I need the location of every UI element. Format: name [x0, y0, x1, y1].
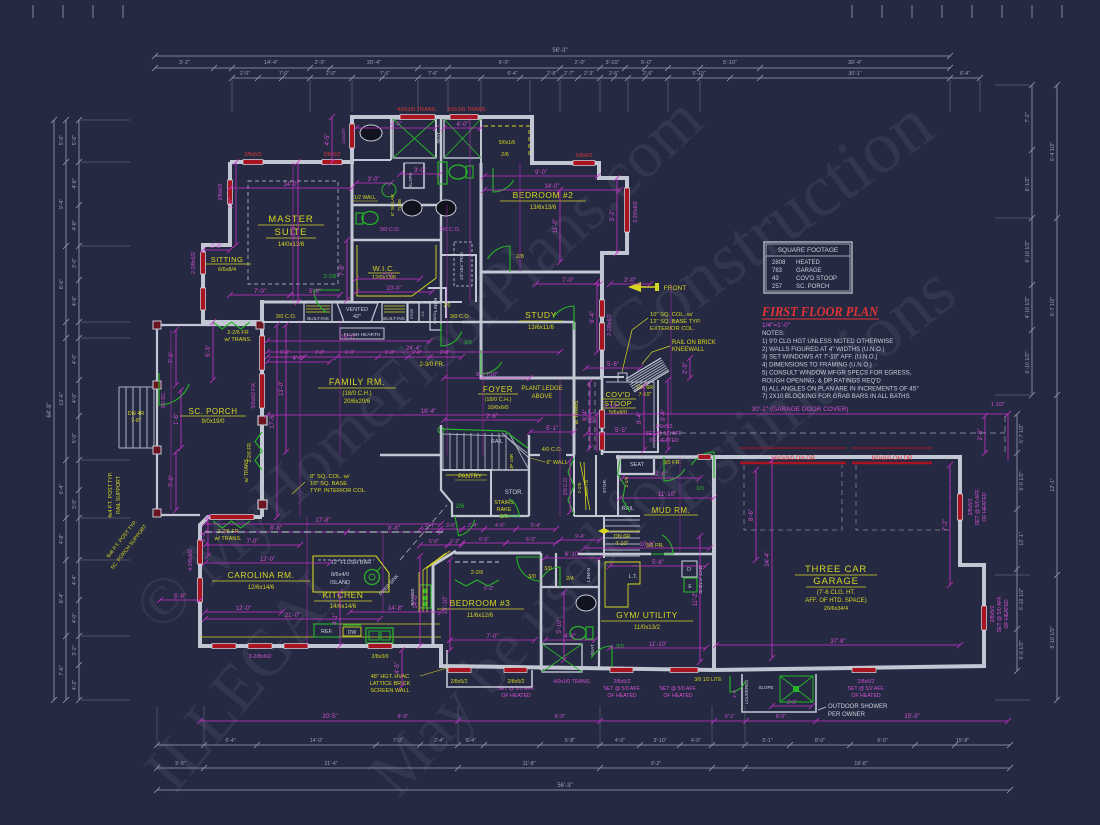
- svg-text:6'-4": 6'-4": [59, 484, 65, 494]
- svg-text:26/6x34/4: 26/6x34/4: [824, 606, 848, 612]
- svg-text:5'-1": 5'-1": [725, 714, 735, 720]
- svg-text:2'-4": 2'-4": [434, 738, 444, 744]
- svg-text:4'-8": 4'-8": [59, 534, 65, 544]
- svg-text:2/6: 2/6: [500, 514, 508, 520]
- svg-text:6'-2": 6'-2": [484, 586, 494, 592]
- svg-text:4x4 P.T. POST TYP.: 4x4 P.T. POST TYP.: [108, 472, 114, 518]
- svg-text:6'-7 1/2": 6'-7 1/2": [1019, 424, 1025, 443]
- svg-text:13/6x13/6: 13/6x13/6: [530, 205, 557, 211]
- svg-text:1 1/2": 1 1/2": [991, 402, 1005, 408]
- svg-text:w/ TRANS.: w/ TRANS.: [213, 536, 242, 542]
- svg-text:5'-5": 5'-5": [175, 761, 185, 767]
- svg-text:L.T.: L.T.: [629, 574, 638, 580]
- svg-text:7) 2X10 BLOCKING FOR GRAB BAR: 7) 2X10 BLOCKING FOR GRAB BARS IN ALL BA…: [762, 393, 910, 400]
- svg-text:1/4"=1'-0": 1/4"=1'-0": [762, 322, 791, 329]
- svg-text:12/6x14/6: 12/6x14/6: [248, 585, 275, 591]
- svg-text:REF.: REF.: [321, 629, 333, 635]
- svg-text:6) ALL ANGLES ON PLAN ARE IN: 6) ALL ANGLES ON PLAN ARE IN INCREMENTS …: [762, 385, 919, 392]
- svg-text:2'-8": 2'-8": [211, 244, 223, 250]
- svg-text:10'-0": 10'-0": [386, 286, 401, 292]
- svg-text:3/0: 3/0: [590, 416, 596, 423]
- svg-text:BUILT-INS: BUILT-INS: [307, 316, 329, 321]
- svg-text:6/6x8/4: 6/6x8/4: [218, 267, 236, 273]
- svg-text:4'-8": 4'-8": [72, 220, 78, 230]
- svg-text:10" SQ. COL. w/: 10" SQ. COL. w/: [650, 312, 693, 318]
- svg-text:12'-1": 12'-1": [1050, 478, 1056, 491]
- svg-text:SC. PORCH: SC. PORCH: [189, 407, 238, 416]
- svg-text:11'-10": 11'-10": [649, 642, 667, 648]
- svg-text:16'-0": 16'-0": [341, 335, 356, 341]
- svg-text:14'-4": 14'-4": [264, 60, 278, 66]
- svg-text:2808: 2808: [772, 260, 786, 266]
- svg-text:9'-0": 9'-0": [398, 714, 409, 720]
- svg-text:8/6x4/0: 8/6x4/0: [331, 572, 349, 578]
- svg-text:1 1/2": 1 1/2": [605, 404, 619, 410]
- svg-text:MASTER: MASTER: [268, 214, 314, 225]
- svg-text:2/4: 2/4: [566, 576, 574, 582]
- svg-text:CAROLINA RM.: CAROLINA RM.: [228, 570, 295, 580]
- svg-text:2/8x6/2: 2/8x6/2: [575, 153, 592, 159]
- svg-text:3-2/0x6/2: 3-2/0x6/2: [633, 201, 639, 223]
- svg-text:4'-8": 4'-8": [72, 178, 78, 188]
- svg-text:6'-10": 6'-10": [565, 552, 580, 558]
- svg-text:2'-8": 2'-8": [385, 350, 395, 356]
- svg-text:HEATED: HEATED: [796, 260, 821, 266]
- svg-text:6'-0": 6'-0": [280, 350, 290, 356]
- svg-text:ROUGH OPENING, & DP RATINGS RE: ROUGH OPENING, & DP RATINGS REQ'D: [762, 377, 881, 384]
- svg-text:5/6x8/0: 5/6x8/0: [609, 410, 627, 416]
- svg-text:8" SQ. COL. w/: 8" SQ. COL. w/: [310, 474, 350, 480]
- svg-text:SET @ 5/0 AFF.: SET @ 5/0 AFF.: [659, 686, 696, 692]
- svg-text:3/0 1/2 LITE: 3/0 1/2 LITE: [694, 677, 722, 683]
- svg-text:8'-6": 8'-6": [749, 509, 755, 521]
- svg-text:9'-4": 9'-4": [661, 409, 667, 421]
- svg-text:5'-0": 5'-0": [72, 433, 78, 443]
- svg-text:2/8x6/2: 2/8x6/2: [218, 183, 224, 200]
- svg-text:6'-0": 6'-0": [345, 350, 355, 356]
- svg-text:4) DIMENSIONS TO FRAMING (U.N: 4) DIMENSIONS TO FRAMING (U.N.O.): [762, 362, 872, 369]
- svg-text:21'-0": 21'-0": [285, 613, 300, 619]
- svg-text:9'-4": 9'-4": [575, 534, 585, 540]
- svg-text:12" SQ. BASE TYP.: 12" SQ. BASE TYP.: [650, 319, 701, 325]
- svg-text:2-2/6: 2-2/6: [577, 482, 583, 493]
- svg-text:3'-10": 3'-10": [605, 60, 619, 66]
- svg-text:9'-4": 9'-4": [59, 199, 65, 209]
- svg-text:17'-8": 17'-8": [315, 518, 330, 524]
- svg-text:8'-0": 8'-0": [776, 714, 786, 720]
- svg-text:w/ TRANS.: w/ TRANS.: [574, 400, 580, 425]
- svg-text:3/0 FR.: 3/0 FR.: [663, 460, 682, 466]
- svg-text:7'-2": 7'-2": [1025, 112, 1031, 122]
- svg-text:5) CONSULT WINDOW MFGR SPECS: 5) CONSULT WINDOW MFGR SPECS FOR EGRESS,: [762, 370, 912, 377]
- svg-text:24'-4": 24'-4": [765, 551, 771, 566]
- svg-text:BEDROOM #2: BEDROOM #2: [513, 190, 574, 200]
- svg-text:6'-0": 6'-0": [877, 738, 887, 744]
- svg-text:7'-0": 7'-0": [393, 738, 403, 744]
- svg-text:FAMILY RM.: FAMILY RM.: [329, 377, 385, 387]
- svg-text:6'-10 1/2": 6'-10 1/2": [1025, 240, 1031, 262]
- svg-text:7'-6": 7'-6": [428, 71, 438, 77]
- svg-text:30'-1": 30'-1": [848, 71, 861, 77]
- svg-text:3'-2": 3'-2": [72, 645, 78, 655]
- svg-text:5'-8": 5'-8": [309, 289, 321, 295]
- svg-text:14'-0": 14'-0": [310, 738, 323, 744]
- svg-text:4'-2": 4'-2": [72, 680, 78, 690]
- svg-text:19'-8": 19'-8": [854, 761, 867, 767]
- svg-text:3/0x1/0 TRANS.: 3/0x1/0 TRANS.: [447, 107, 487, 113]
- svg-text:15'-3": 15'-3": [904, 714, 919, 720]
- svg-text:COV'D: COV'D: [605, 390, 630, 399]
- svg-text:5'-1": 5'-1": [546, 426, 558, 432]
- svg-text:5'-8": 5'-8": [565, 738, 575, 744]
- svg-text:9'-10": 9'-10": [692, 71, 705, 77]
- svg-text:2'-4": 2'-4": [468, 523, 478, 529]
- svg-text:6" WALL: 6" WALL: [546, 460, 567, 466]
- svg-text:3/0 SC.: 3/0 SC.: [161, 392, 167, 409]
- svg-text:3'-10": 3'-10": [653, 738, 666, 744]
- svg-text:5'-4": 5'-4": [531, 523, 541, 529]
- svg-text:5'-0": 5'-0": [59, 135, 65, 145]
- svg-text:STOR.: STOR.: [602, 479, 608, 494]
- svg-text:13'-0": 13'-0": [279, 381, 285, 396]
- svg-text:8'-8": 8'-8": [388, 526, 400, 532]
- svg-text:4'-5": 4'-5": [395, 662, 401, 674]
- svg-text:11'-0": 11'-0": [553, 219, 559, 234]
- svg-text:9'-4": 9'-4": [590, 311, 596, 323]
- svg-text:5'-10": 5'-10": [557, 618, 563, 633]
- svg-text:2/8x3/0: 2/8x3/0: [371, 654, 388, 660]
- svg-text:EXTERIOR COL.: EXTERIOR COL.: [650, 326, 695, 332]
- svg-text:TYP. INTERIOR COL.: TYP. INTERIOR COL.: [310, 488, 367, 494]
- svg-text:2/8x5/2: 2/8x5/2: [507, 679, 524, 685]
- svg-text:3/0: 3/0: [696, 486, 704, 492]
- svg-text:7-0": 7-0": [229, 198, 235, 209]
- svg-text:12'-0": 12'-0": [236, 606, 251, 612]
- svg-text:4'-1": 4'-1": [333, 613, 339, 625]
- svg-text:RAIL: RAIL: [491, 439, 503, 445]
- svg-text:4'-0": 4'-0": [615, 738, 625, 744]
- svg-text:SET @ 5/0 AFF.: SET @ 5/0 AFF.: [997, 595, 1003, 632]
- svg-text:ISLAND: ISLAND: [330, 580, 350, 586]
- svg-text:20'-5": 20'-5": [322, 714, 337, 720]
- svg-text:14'-0": 14'-0": [544, 184, 559, 190]
- svg-text:8'-3 7/16": 8'-3 7/16": [476, 372, 498, 378]
- svg-text:PLANT LEDGE: PLANT LEDGE: [521, 386, 562, 392]
- svg-text:1) 9'0 CLG HGT UNLESS NOTED O: 1) 9'0 CLG HGT UNLESS NOTED OTHERWISE: [762, 338, 893, 345]
- svg-text:6'-10 1/2": 6'-10 1/2": [1050, 626, 1056, 648]
- svg-text:SLOPE: SLOPE: [408, 172, 413, 187]
- svg-text:D: D: [687, 567, 691, 573]
- svg-text:OUTDOOR SHOWER: OUTDOOR SHOWER: [828, 704, 888, 710]
- svg-text:SET @ 5/0 AFF.: SET @ 5/0 AFF.: [603, 686, 640, 692]
- svg-text:3/0 C.O.: 3/0 C.O.: [380, 227, 401, 233]
- svg-text:2-3/0 FR.: 2-3/0 FR.: [419, 362, 444, 368]
- svg-text:5'-3": 5'-3": [206, 345, 212, 357]
- svg-text:6'-7 1/2": 6'-7 1/2": [1050, 297, 1056, 316]
- svg-text:7-8": 7-8": [131, 418, 141, 424]
- svg-text:SC. PORCH: SC. PORCH: [796, 284, 829, 290]
- svg-text:RAIL ON BRICK: RAIL ON BRICK: [672, 340, 716, 346]
- svg-text:FIRST FLOOR PLAN: FIRST FLOOR PLAN: [761, 305, 879, 320]
- svg-text:VENTED: VENTED: [346, 307, 368, 313]
- svg-text:3'-2": 3'-2": [179, 60, 190, 66]
- svg-text:56'-3": 56'-3": [557, 783, 572, 789]
- svg-text:SEAT: SEAT: [436, 132, 441, 144]
- svg-text:ABOVE: ABOVE: [532, 394, 553, 400]
- svg-text:16'-4": 16'-4": [421, 409, 436, 415]
- svg-text:SITTING: SITTING: [211, 255, 243, 264]
- svg-text:5'-10": 5'-10": [723, 60, 737, 66]
- svg-text:BEDROOM #3: BEDROOM #3: [450, 598, 511, 608]
- svg-text:2'-8": 2'-8": [547, 71, 557, 77]
- svg-text:13'-6": 13'-6": [291, 224, 297, 239]
- svg-text:2'-6": 2'-6": [655, 472, 667, 478]
- svg-text:13'-6": 13'-6": [59, 392, 65, 405]
- svg-text:W.I.C.: W.I.C.: [373, 264, 396, 273]
- svg-text:30'-1" (GARAGE DOOR COVER): 30'-1" (GARAGE DOOR COVER): [752, 406, 849, 413]
- svg-text:4'-0": 4'-0": [72, 613, 78, 623]
- svg-text:14/0x13/6: 14/0x13/6: [278, 242, 305, 248]
- svg-text:21'-4": 21'-4": [324, 761, 337, 767]
- svg-text:THREE CAR: THREE CAR: [805, 564, 867, 575]
- svg-text:5'-1": 5'-1": [762, 738, 772, 744]
- svg-text:4'-4": 4'-4": [72, 575, 78, 585]
- svg-text:6'-4": 6'-4": [225, 738, 235, 744]
- svg-text:10" SQ. BASE: 10" SQ. BASE: [310, 481, 347, 487]
- svg-text:GARAGE: GARAGE: [796, 268, 822, 274]
- svg-text:7'-0": 7'-0": [562, 278, 574, 284]
- svg-text:3/0: 3/0: [544, 566, 552, 572]
- svg-text:6'-0 1/2": 6'-0 1/2": [1019, 640, 1025, 659]
- svg-text:2/6: 2/6: [456, 504, 465, 510]
- svg-text:KNEEWALL: KNEEWALL: [672, 347, 705, 353]
- svg-text:4'-0": 4'-0": [495, 523, 505, 529]
- svg-text:5'-8": 5'-8": [174, 594, 186, 600]
- svg-text:OF HEATED: OF HEATED: [1004, 599, 1010, 629]
- svg-text:OF HEATED: OF HEATED: [649, 438, 679, 444]
- svg-text:6'-0": 6'-0": [479, 537, 489, 543]
- svg-text:3/0 C.O.: 3/0 C.O.: [276, 314, 297, 320]
- svg-text:2'-0": 2'-0": [624, 278, 636, 284]
- svg-text:OF HEATED: OF HEATED: [982, 492, 988, 522]
- svg-text:6'-0": 6'-0": [526, 537, 536, 543]
- svg-text:2-2/6 FR: 2-2/6 FR: [227, 330, 248, 336]
- svg-text:6'-0 1/2": 6'-0 1/2": [1019, 471, 1025, 490]
- svg-text:12'-1": 12'-1": [1019, 532, 1025, 545]
- svg-text:5'-0": 5'-0": [641, 60, 652, 66]
- svg-text:56'-3": 56'-3": [552, 48, 567, 54]
- svg-text:24"x54" PDS: 24"x54" PDS: [459, 252, 465, 280]
- svg-text:8'-8": 8'-8": [270, 526, 282, 532]
- svg-text:8'-4": 8'-4": [59, 593, 65, 603]
- svg-text:2/6: 2/6: [501, 152, 509, 158]
- svg-text:LINEN: LINEN: [433, 297, 439, 312]
- svg-text:42": 42": [353, 314, 361, 320]
- svg-text:6'-0": 6'-0": [429, 539, 439, 545]
- svg-text:(7'-6 CLG. HT.: (7'-6 CLG. HT.: [817, 590, 855, 596]
- svg-text:20/6x20/6: 20/6x20/6: [344, 399, 371, 405]
- svg-text:DN 6R: DN 6R: [614, 534, 631, 540]
- svg-text:4/0x1/0 TRANS.: 4/0x1/0 TRANS.: [397, 107, 437, 113]
- svg-text:STOR.: STOR.: [505, 490, 524, 496]
- svg-text:4'-10 1/2": 4'-10 1/2": [1025, 296, 1031, 318]
- svg-text:3) SET WINDOWS AT 7'-10" AFF.: 3) SET WINDOWS AT 7'-10" AFF. (U.N.O.): [762, 354, 877, 361]
- svg-text:3/0: 3/0: [464, 340, 472, 346]
- svg-text:3'-6": 3'-6": [787, 700, 797, 706]
- svg-text:11'-2": 11'-2": [693, 592, 699, 607]
- svg-text:SQUARE FOOTAGE: SQUARE FOOTAGE: [778, 247, 839, 254]
- svg-text:UP 16R: UP 16R: [509, 453, 515, 470]
- svg-text:7'-0": 7'-0": [382, 273, 394, 279]
- svg-text:6'-10 1/2": 6'-10 1/2": [1025, 351, 1031, 373]
- svg-text:LINEN: LINEN: [433, 312, 437, 323]
- svg-text:8/0x8/0 OH DR: 8/0x8/0 OH DR: [872, 456, 913, 462]
- svg-text:48" HGT. HVAC: 48" HGT. HVAC: [371, 674, 410, 680]
- svg-text:7'-2": 7'-2": [943, 519, 949, 531]
- svg-text:DN 6R: DN 6R: [637, 385, 654, 391]
- svg-text:4'-0": 4'-0": [390, 122, 402, 128]
- svg-text:7-10": 7-10": [639, 392, 652, 398]
- svg-text:64'-9": 64'-9": [47, 402, 53, 417]
- svg-text:16/0x8/0 OH DR: 16/0x8/0 OH DR: [771, 456, 816, 462]
- svg-text:2'-8": 2'-8": [440, 350, 450, 356]
- svg-text:(18/0 C.H.): (18/0 C.H.): [485, 397, 512, 403]
- svg-text:2'-9": 2'-9": [683, 362, 689, 374]
- svg-text:9/0x19/0: 9/0x19/0: [201, 419, 225, 425]
- svg-text:3/0 C.O.: 3/0 C.O.: [440, 227, 461, 233]
- svg-text:4'-5": 4'-5": [325, 134, 331, 146]
- svg-text:5'-6": 5'-6": [652, 560, 664, 566]
- svg-text:SHELV/ CAB: SHELV/ CAB: [698, 566, 704, 594]
- svg-text:17'-5": 17'-5": [270, 413, 276, 428]
- svg-text:NOTES:: NOTES:: [762, 330, 785, 337]
- svg-text:11/0x13/2: 11/0x13/2: [634, 625, 661, 631]
- svg-text:8'-6": 8'-6": [59, 279, 65, 289]
- svg-text:4/0 C.O.: 4/0 C.O.: [542, 447, 563, 453]
- svg-text:3'-0": 3'-0": [72, 258, 78, 268]
- svg-text:2-2/6: 2-2/6: [471, 570, 484, 576]
- svg-text:STOR: STOR: [410, 309, 414, 320]
- svg-text:7'-6": 7'-6": [59, 665, 65, 675]
- svg-text:5'-5": 5'-5": [615, 428, 627, 434]
- svg-text:2) WALLS FIGURED AT 4" WIDTHS: 2) WALLS FIGURED AT 4" WIDTHS (U.N.O.): [762, 346, 885, 353]
- svg-text:7'-0": 7'-0": [487, 634, 499, 640]
- svg-text:2'-0": 2'-0": [575, 60, 586, 66]
- svg-text:9'-0": 9'-0": [555, 714, 566, 720]
- svg-text:13/6x11/6: 13/6x11/6: [528, 325, 555, 331]
- svg-text:7'-6": 7'-6": [380, 71, 390, 77]
- svg-text:3/0: 3/0: [528, 574, 536, 580]
- svg-text:9'-2": 9'-2": [651, 761, 661, 767]
- svg-text:783: 783: [772, 268, 783, 274]
- svg-text:11/6x12/6: 11/6x12/6: [467, 613, 494, 619]
- svg-text:1'-6": 1'-6": [174, 413, 180, 425]
- svg-text:SET @ 5/0 AFF.: SET @ 5/0 AFF.: [975, 488, 981, 525]
- svg-text:4'-0": 4'-0": [457, 122, 469, 128]
- svg-text:1/4x3/7: 1/4x3/7: [341, 128, 347, 144]
- svg-text:4'-0": 4'-0": [293, 356, 305, 362]
- svg-text:2/0x5/2: 2/0x5/2: [655, 424, 672, 430]
- svg-text:4'-0: 4'-0: [732, 690, 737, 698]
- svg-text:20'-4": 20'-4": [367, 60, 381, 66]
- svg-text:3'-0": 3'-0": [446, 523, 456, 529]
- svg-text:12'-0": 12'-0": [260, 557, 275, 563]
- svg-text:FOYER: FOYER: [483, 385, 513, 394]
- svg-text:RAKE: RAKE: [497, 507, 512, 513]
- svg-text:14'-0": 14'-0": [283, 182, 298, 188]
- svg-text:OF HEATED: OF HEATED: [501, 693, 531, 699]
- svg-text:6'-4": 6'-4": [507, 71, 517, 77]
- svg-text:6'-4 1/2": 6'-4 1/2": [1050, 142, 1056, 161]
- svg-text:RAIL SUPPORT: RAIL SUPPORT: [116, 475, 122, 514]
- svg-text:4-2/8x6/2: 4-2/8x6/2: [188, 549, 194, 571]
- svg-text:3-2/8x6/2: 3-2/8x6/2: [249, 654, 272, 660]
- svg-text:11'-10": 11'-10": [658, 492, 676, 498]
- svg-text:2/8x6/2: 2/8x6/2: [244, 152, 261, 158]
- svg-text:6" SOLAR: 6" SOLAR: [390, 193, 396, 216]
- svg-text:AFF. OF HTD. SPACE): AFF. OF HTD. SPACE): [805, 598, 867, 604]
- svg-text:2/8x5/2: 2/8x5/2: [450, 679, 467, 685]
- svg-text:43: 43: [772, 276, 779, 282]
- svg-text:2-2/8x6/2: 2-2/8x6/2: [607, 314, 613, 336]
- svg-text:6'-1/2": 6'-1/2": [1025, 177, 1031, 192]
- svg-text:OF HEATED: OF HEATED: [663, 693, 693, 699]
- svg-text:4'-6": 4'-6": [72, 296, 78, 306]
- svg-text:OF HEATED: OF HEATED: [607, 693, 637, 699]
- svg-text:3'-2": 3'-2": [610, 210, 616, 222]
- svg-text:w/ TRANS.: w/ TRANS.: [223, 337, 252, 343]
- svg-text:3'-0": 3'-0": [414, 168, 426, 174]
- svg-text:DW: DW: [348, 630, 357, 636]
- svg-text:LINEN: LINEN: [586, 567, 592, 582]
- svg-text:2'-4": 2'-4": [425, 523, 435, 529]
- svg-text:2'-0": 2'-0": [315, 60, 326, 66]
- svg-text:9'-0": 9'-0": [535, 170, 547, 176]
- svg-text:5'-0": 5'-0": [72, 135, 78, 145]
- svg-text:14'-8": 14'-8": [388, 606, 403, 612]
- svg-text:MUD RM.: MUD RM.: [652, 506, 691, 515]
- svg-text:DN 4R: DN 4R: [128, 411, 145, 417]
- svg-text:FRONT: FRONT: [664, 285, 686, 292]
- svg-text:4'-6": 4'-6": [564, 634, 576, 640]
- svg-text:14'-0": 14'-0": [413, 593, 419, 608]
- svg-text:7'-0": 7'-0": [279, 71, 289, 77]
- svg-text:2/8x5/2: 2/8x5/2: [613, 679, 630, 685]
- svg-text:STUDY: STUDY: [525, 310, 557, 320]
- svg-text:9'-0": 9'-0": [499, 60, 510, 66]
- svg-text:10'-6": 10'-6": [639, 542, 654, 548]
- svg-text:2'-6": 2'-6": [643, 71, 653, 77]
- svg-text:2'-6": 2'-6": [978, 429, 984, 441]
- svg-text:TUBE: TUBE: [397, 199, 403, 212]
- svg-text:BUILT-INS: BUILT-INS: [383, 316, 405, 321]
- svg-text:11'-8": 11'-8": [523, 761, 536, 767]
- svg-text:5'-6": 5'-6": [607, 362, 619, 368]
- svg-text:3'-0": 3'-0": [368, 177, 380, 183]
- svg-text:7'-0": 7'-0": [169, 352, 175, 364]
- svg-text:3/0 C.O.: 3/0 C.O.: [450, 314, 471, 320]
- svg-text:30'-4": 30'-4": [848, 60, 862, 66]
- svg-text:4'-0": 4'-0": [72, 354, 78, 364]
- svg-text:2/8x5/2: 2/8x5/2: [968, 498, 974, 515]
- svg-text:2-2/6: 2-2/6: [324, 274, 337, 280]
- svg-text:STAIRS: STAIRS: [494, 500, 514, 506]
- svg-text:OF HEATED: OF HEATED: [851, 693, 881, 699]
- svg-text:2'-6": 2'-6": [609, 71, 619, 77]
- svg-text:SEAT: SEAT: [630, 462, 645, 468]
- svg-text:24'-4": 24'-4": [406, 346, 421, 352]
- svg-text:4/0x1/0 TRANS.: 4/0x1/0 TRANS.: [553, 679, 590, 685]
